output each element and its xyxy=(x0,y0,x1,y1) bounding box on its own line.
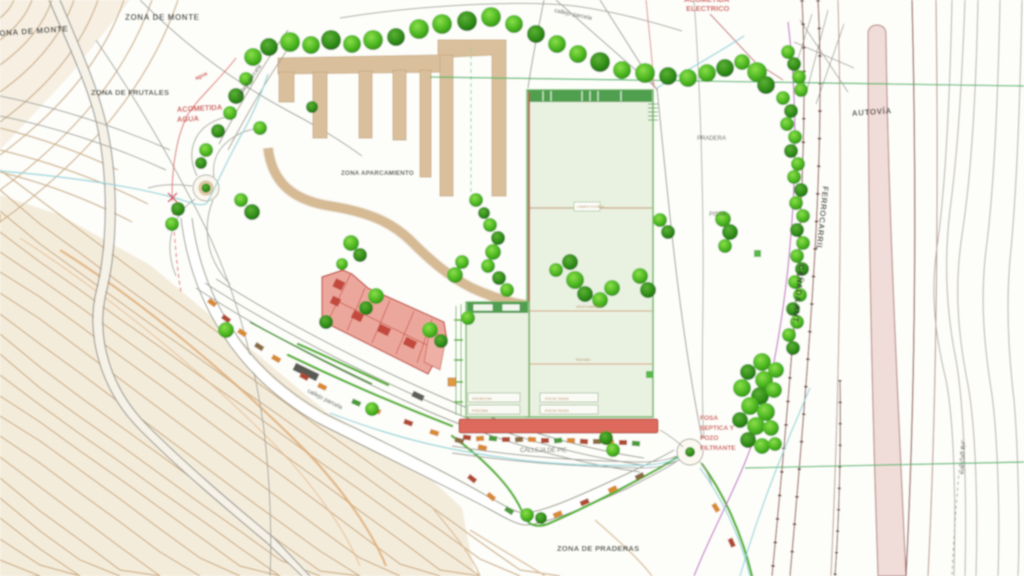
svg-text:ZONA DE PRADERAS: ZONA DE PRADERAS xyxy=(557,544,639,553)
svg-text:CALLEJA DE PIE: CALLEJA DE PIE xyxy=(520,448,567,454)
svg-text:CAMPO FUTBOL: CAMPO FUTBOL xyxy=(577,205,605,209)
svg-text:POZO: POZO xyxy=(700,435,718,442)
svg-text:VESTUARIOS: VESTUARIOS xyxy=(576,304,602,309)
svg-text:PISCINA: PISCINA xyxy=(472,408,488,413)
svg-text:PISTA: PISTA xyxy=(709,212,726,218)
svg-text:FILTRANTE: FILTRANTE xyxy=(700,445,736,452)
svg-text:PISTAS: PISTAS xyxy=(576,357,590,362)
svg-text:ZONA APARCAMIENTO: ZONA APARCAMIENTO xyxy=(341,170,414,177)
svg-text:PISTA TENIS: PISTA TENIS xyxy=(545,396,569,401)
svg-text:ZONA DE MONTE: ZONA DE MONTE xyxy=(125,13,200,22)
svg-text:PISTA TENIS: PISTA TENIS xyxy=(545,408,569,413)
svg-text:ZONA DE FRUTALES: ZONA DE FRUTALES xyxy=(91,88,169,97)
svg-text:PRADERA: PRADERA xyxy=(697,136,726,142)
svg-text:SEPTICA Y: SEPTICA Y xyxy=(700,425,735,432)
svg-text:AGUA: AGUA xyxy=(177,114,200,124)
svg-text:FOSA: FOSA xyxy=(700,415,718,422)
svg-text:FRONTON: FRONTON xyxy=(472,396,492,401)
svg-text:ELECTRICO: ELECTRICO xyxy=(686,4,730,13)
